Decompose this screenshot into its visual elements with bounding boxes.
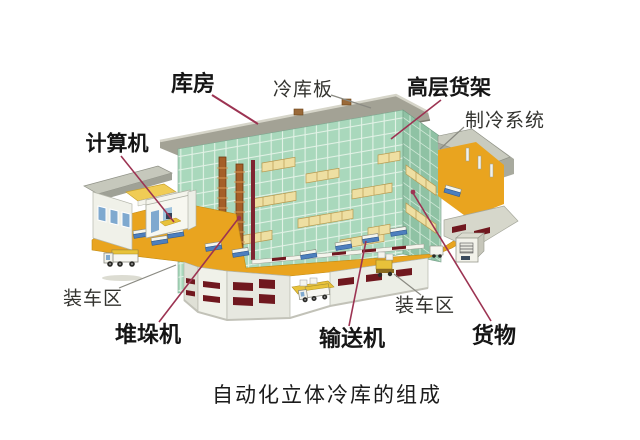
- label-computer: 计算机: [86, 134, 149, 155]
- label-warehouse: 库房: [171, 73, 215, 95]
- label-cold-storage-panel: 冷库板: [273, 81, 333, 100]
- label-loading-area-right: 装车区: [395, 297, 455, 316]
- label-high-rise-rack: 高层货架: [407, 78, 491, 99]
- figure: 库房 冷库板 高层货架 制冷系统 计算机 装车区 堆垛机 输送机 装车区 货物 …: [0, 0, 640, 440]
- roof-vent: [294, 109, 303, 115]
- label-goods: 货物: [472, 325, 516, 347]
- refrigeration-unit: [456, 233, 484, 262]
- leader-warehouse: [212, 95, 258, 124]
- label-stacker-crane: 堆垛机: [115, 324, 181, 346]
- label-conveyor: 输送机: [319, 328, 385, 350]
- right-wing: [438, 129, 518, 262]
- warehouse-illustration: [0, 0, 640, 440]
- label-refrigeration-system: 制冷系统: [465, 112, 545, 131]
- label-loading-area-left: 装车区: [63, 290, 123, 309]
- figure-caption: 自动化立体冷库的组成: [212, 379, 442, 409]
